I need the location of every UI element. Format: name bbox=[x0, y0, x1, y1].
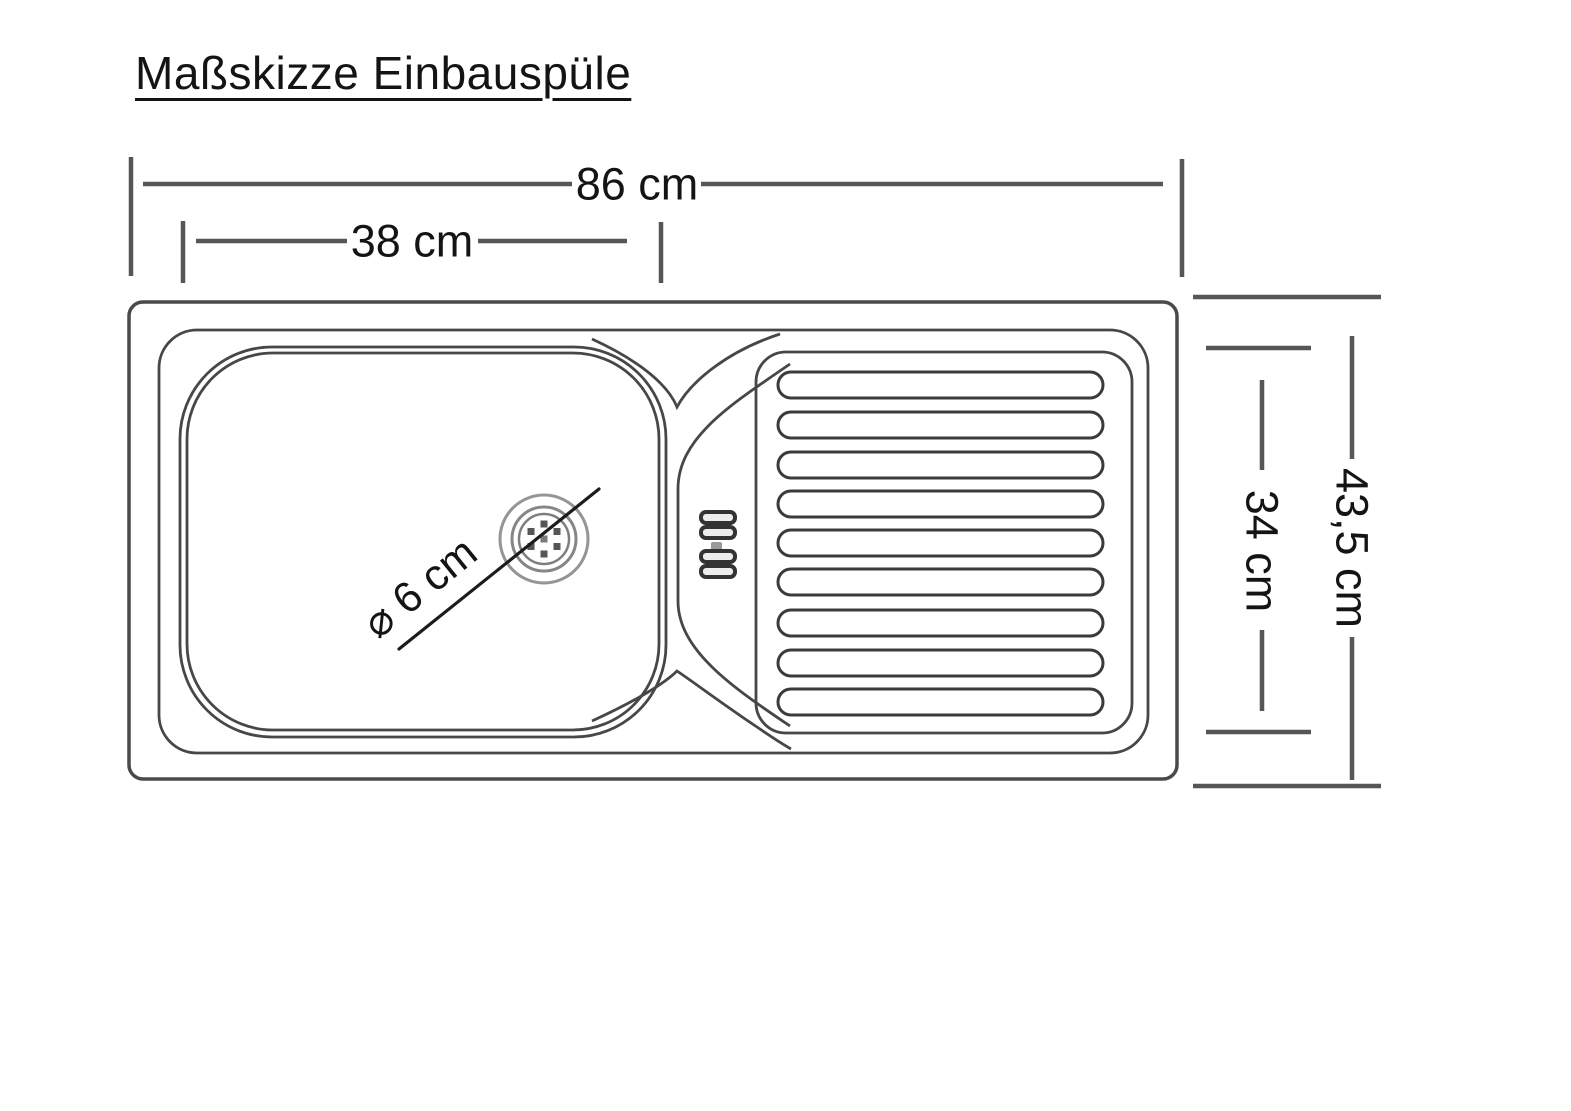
sink-dimension-drawing: 86 cm 38 cm 43,5 cm 34 cm bbox=[0, 0, 1571, 1111]
drainboard-slat bbox=[778, 689, 1103, 715]
sink-body: ⌀ 6 cm bbox=[129, 302, 1177, 779]
overflow-bar bbox=[701, 512, 735, 523]
drainboard-slat bbox=[778, 530, 1103, 556]
dimension-total-width: 86 cm bbox=[131, 157, 1182, 277]
drainboard-slat bbox=[778, 412, 1103, 438]
measurement-sketch-page: Maßskizze Einbauspüle 86 cm 38 cm 43,5 c… bbox=[0, 0, 1571, 1111]
dimension-basin-width: 38 cm bbox=[183, 216, 661, 284]
drainboard-slat bbox=[778, 569, 1103, 595]
drainboard-slat bbox=[778, 491, 1103, 517]
drainboard-slats bbox=[778, 372, 1103, 715]
overflow-bar bbox=[701, 527, 735, 538]
dim-label-basin-width: 38 cm bbox=[351, 216, 474, 267]
overflow-bar bbox=[701, 566, 735, 577]
drainboard-slat bbox=[778, 372, 1103, 398]
drainboard-slat bbox=[778, 452, 1103, 478]
overflow-bar bbox=[701, 551, 735, 562]
dimension-drainer-depth: 34 cm bbox=[1206, 348, 1311, 732]
dim-label-total-width: 86 cm bbox=[576, 159, 699, 210]
overflow-dot bbox=[711, 542, 722, 550]
dim-label-total-depth: 43,5 cm bbox=[1327, 468, 1378, 628]
drainboard-slat bbox=[778, 650, 1103, 676]
drainboard-slat bbox=[778, 610, 1103, 636]
dim-label-drainer-depth: 34 cm bbox=[1237, 490, 1288, 613]
